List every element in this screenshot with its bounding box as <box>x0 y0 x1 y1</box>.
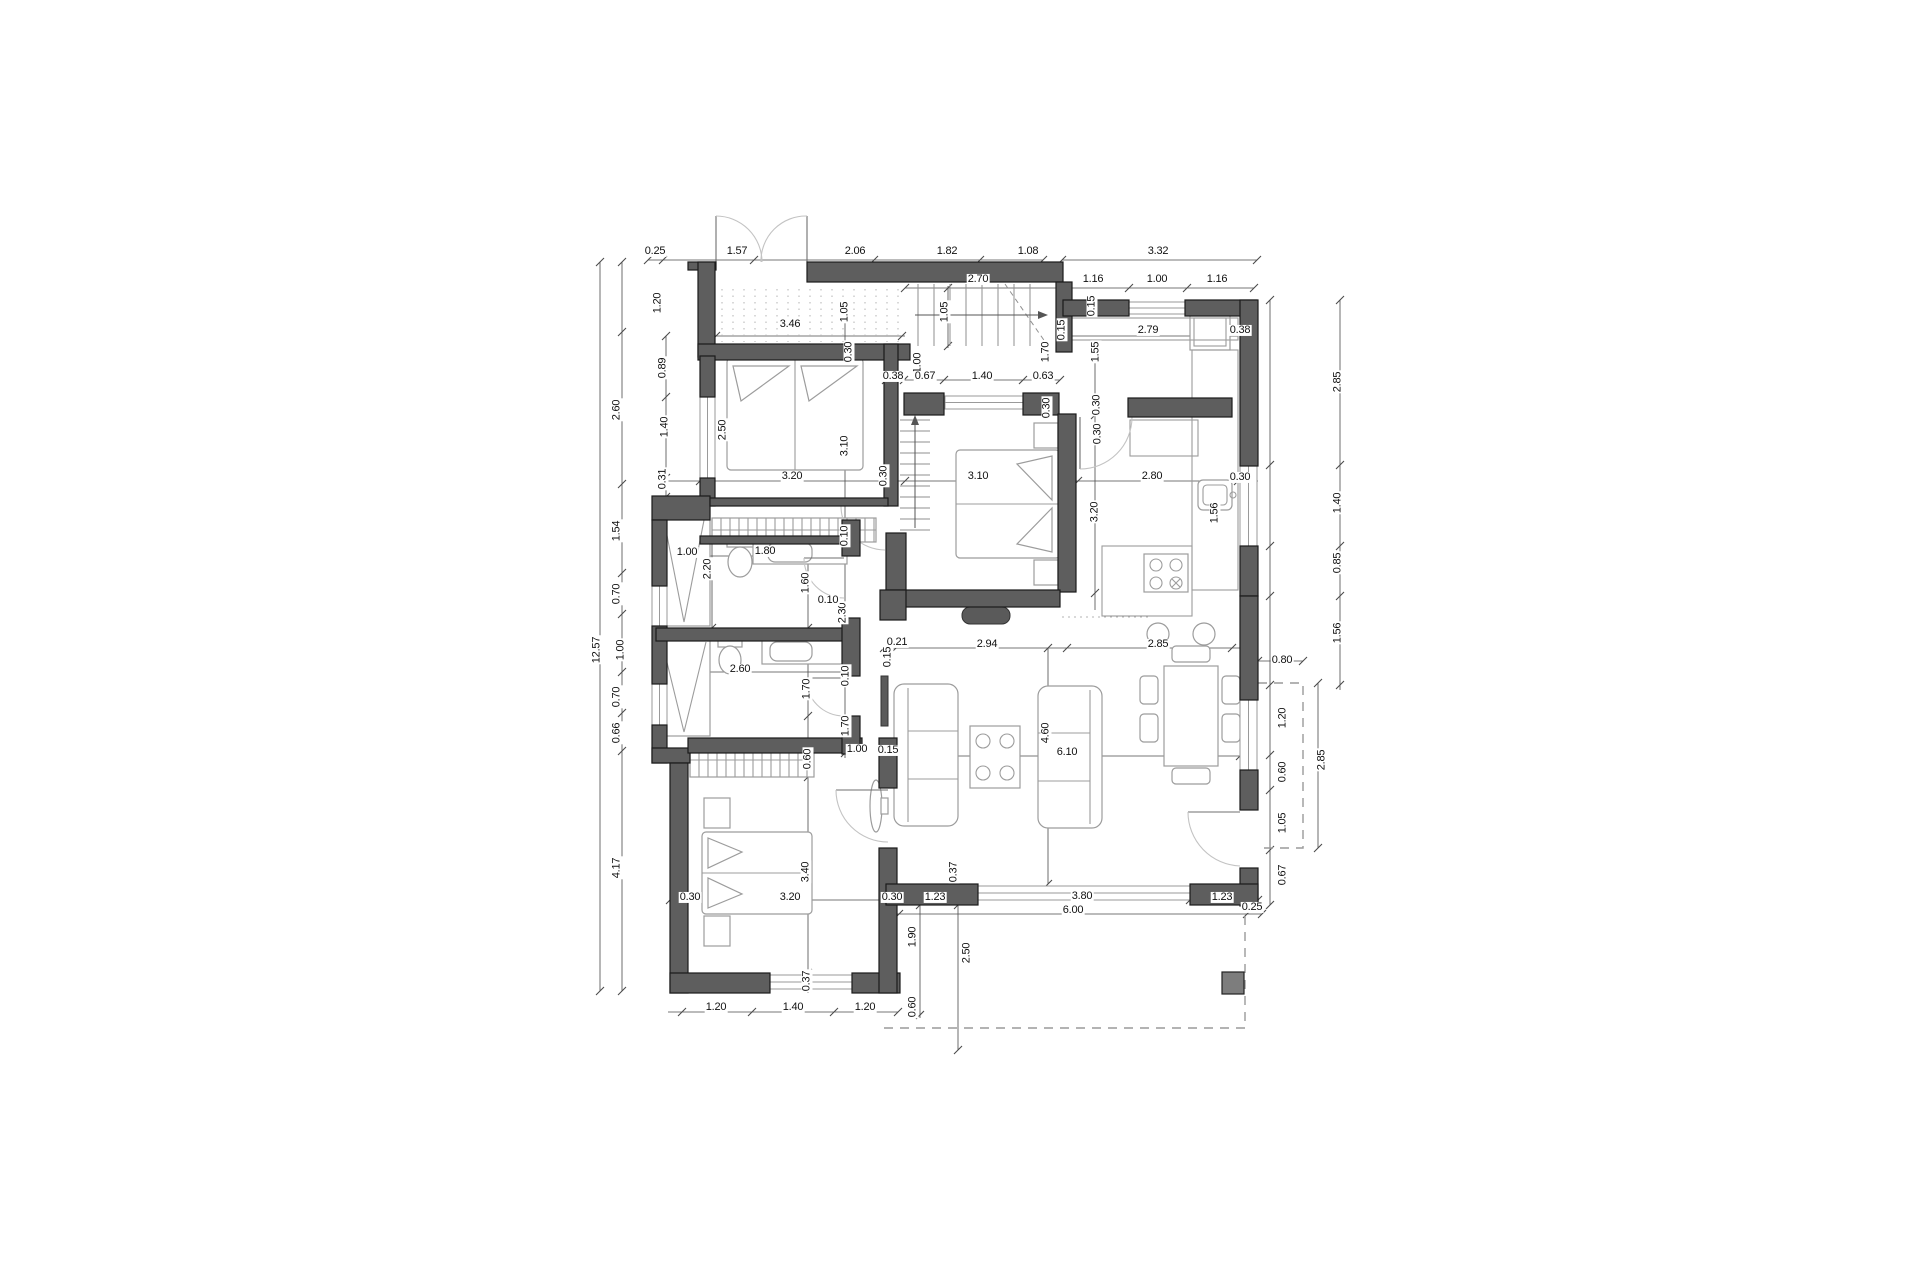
fridge <box>1190 314 1230 350</box>
coffee-table <box>970 726 1020 788</box>
doormat <box>962 607 1010 624</box>
wall-segment <box>1063 300 1129 316</box>
wall-segment <box>886 884 978 905</box>
wall-segment <box>842 716 860 754</box>
wall-segment <box>1056 282 1072 352</box>
wall-segment <box>656 628 844 641</box>
wall-segment <box>670 973 770 993</box>
bed-double-bedroom1 <box>727 358 863 470</box>
wall-segment <box>670 763 688 993</box>
bed-double-bedroom3 <box>702 798 812 946</box>
wall-segment <box>688 738 862 753</box>
wall-segment <box>652 748 690 763</box>
dining-table-set <box>1140 646 1240 784</box>
wall-segment <box>879 738 897 788</box>
sofa-right <box>1038 686 1102 828</box>
bar-stool <box>1147 623 1169 645</box>
floor-plan <box>0 0 1920 1280</box>
radiator <box>881 676 888 726</box>
bed-double-bedroom2 <box>956 423 1060 585</box>
kitchen-cart <box>1130 420 1198 456</box>
pergola-dashed-boundary <box>1258 683 1303 848</box>
wall-segment <box>880 590 906 620</box>
wall-segment <box>652 496 710 520</box>
wall-segment <box>886 590 1060 607</box>
wall-segment <box>710 498 888 506</box>
wall-segment <box>884 344 898 506</box>
wall-segment <box>904 393 944 415</box>
wall-segment <box>842 520 860 556</box>
terrace-dashed-boundary <box>884 905 1245 1028</box>
wall-segment <box>1058 414 1076 592</box>
wall-segment <box>1190 884 1258 905</box>
kitchen-right-counter <box>1192 350 1238 590</box>
bathroom2-fixtures <box>718 637 846 674</box>
terrace-column <box>1222 972 1244 994</box>
wall-segment <box>807 262 1063 282</box>
wall-segment <box>879 848 897 993</box>
wall-segment <box>652 520 667 586</box>
wall-segment <box>1240 770 1258 810</box>
wall-segment <box>1240 546 1258 596</box>
wall-segment <box>698 262 715 357</box>
floor-plan-canvas: 0.251.572.061.821.083.322.701.161.001.16… <box>0 0 1920 1280</box>
wall-segment <box>700 536 846 544</box>
wall-segment <box>1240 596 1258 700</box>
stove <box>1144 554 1188 592</box>
wall-segment <box>700 356 715 397</box>
kitchen-sink <box>1198 480 1236 510</box>
wall-segment <box>1128 398 1232 417</box>
bar-stool <box>1193 623 1215 645</box>
sofa-left <box>894 684 958 826</box>
wall-segment <box>886 533 906 592</box>
wall-segment <box>842 618 860 676</box>
wall-segment <box>1240 300 1258 466</box>
wall-segment <box>1023 393 1059 415</box>
wall-segment <box>698 344 910 360</box>
